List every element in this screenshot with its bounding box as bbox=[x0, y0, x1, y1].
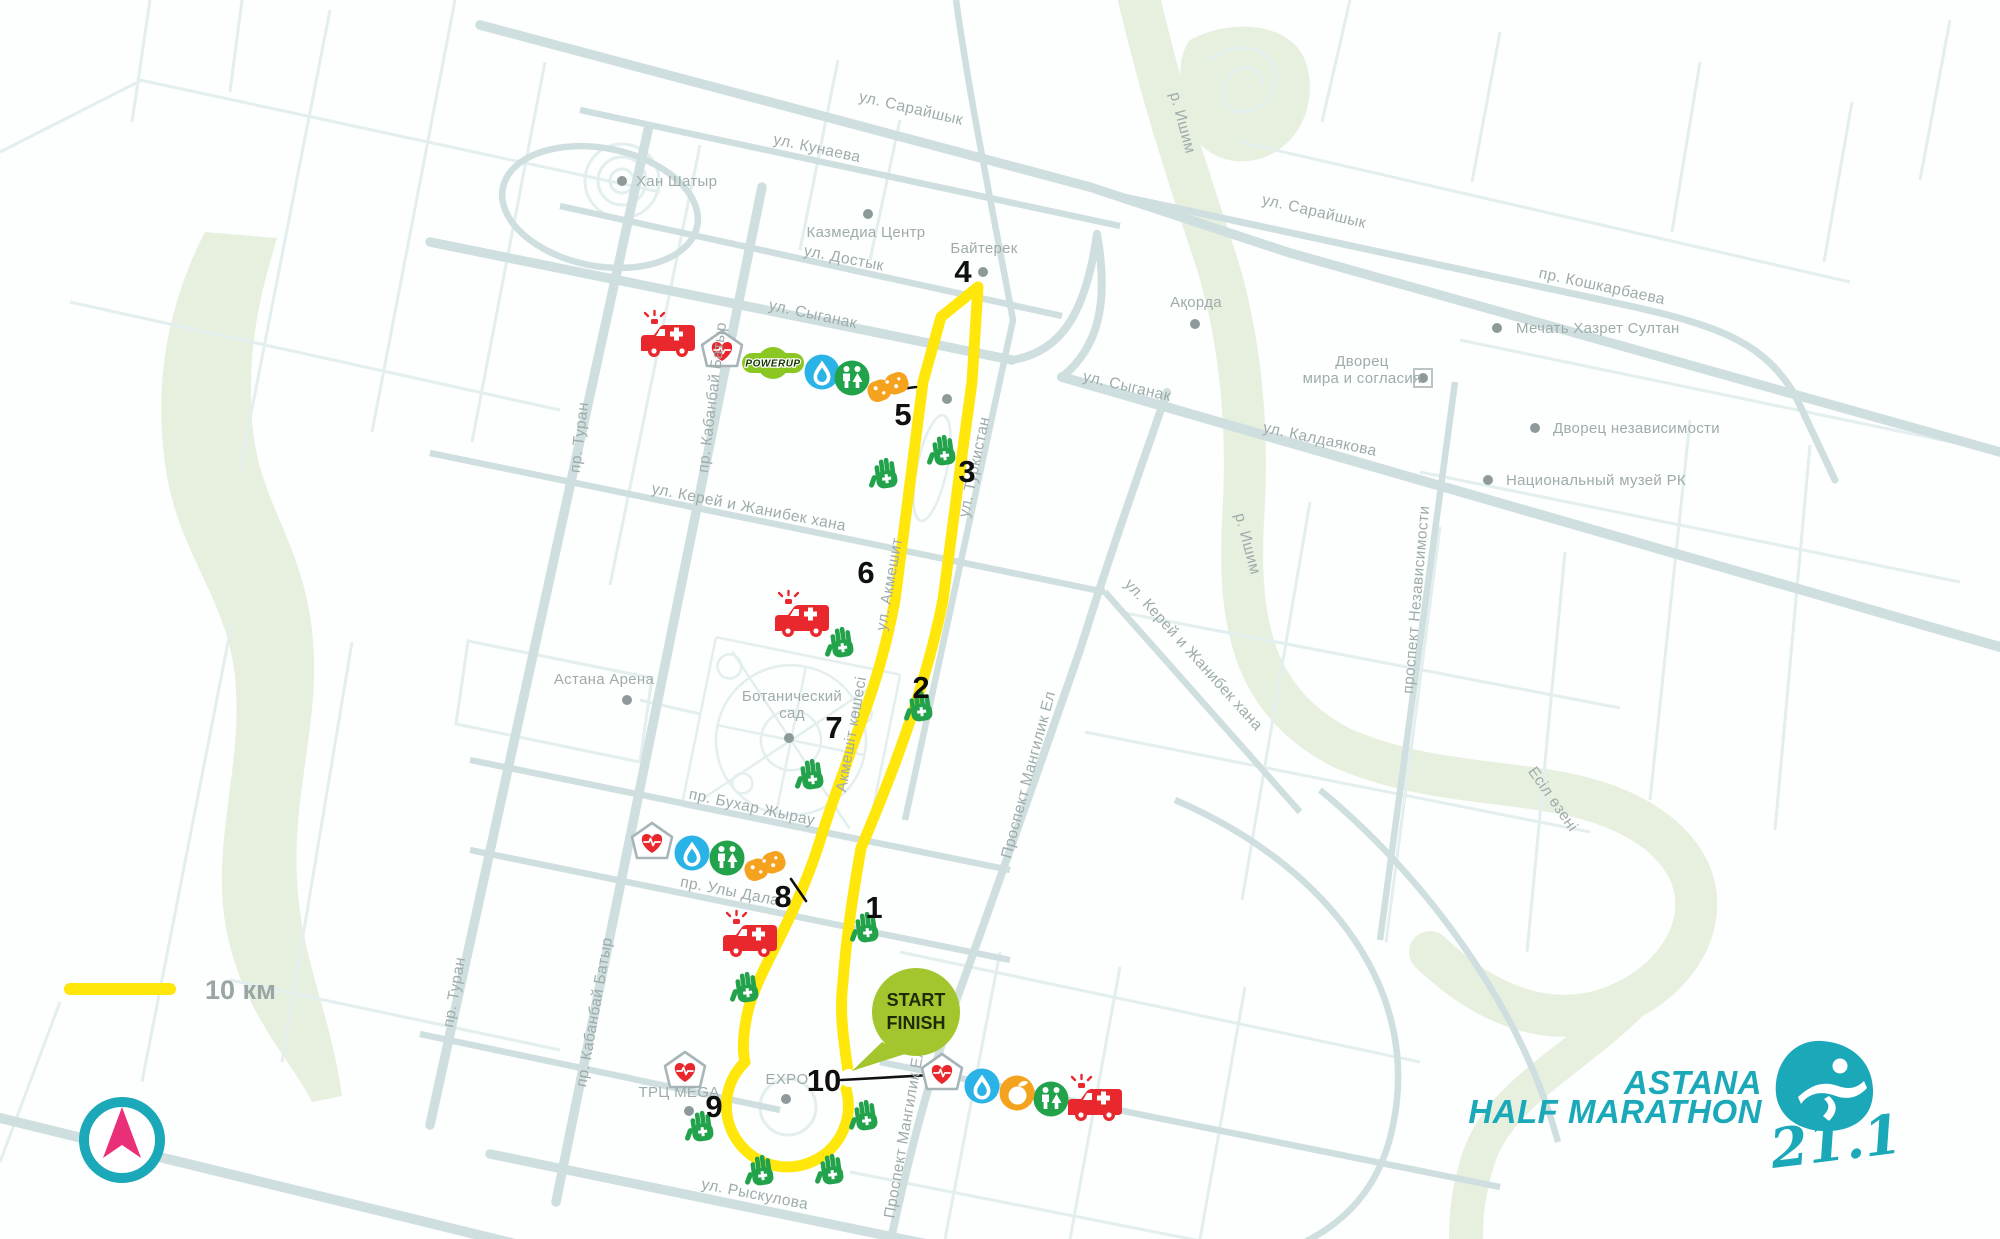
logo-title-line2: HALF MARATHON bbox=[1468, 1093, 1762, 1130]
toilets-icon bbox=[1034, 1082, 1069, 1117]
km-marker-8: 8 bbox=[774, 879, 791, 914]
poi-dot bbox=[942, 394, 952, 404]
km-marker-2: 2 bbox=[912, 670, 929, 705]
km-marker-6: 6 bbox=[857, 555, 874, 590]
poi-dot bbox=[1530, 423, 1540, 433]
km-marker-4: 4 bbox=[954, 254, 972, 289]
poi-label: EXPO bbox=[766, 1071, 809, 1088]
poi-dot bbox=[622, 695, 632, 705]
water-icon bbox=[805, 355, 840, 390]
map-canvas: POWERUP Хан ШатырКазмедиа ЦентрБайтерекА… bbox=[0, 0, 2000, 1239]
water-icon bbox=[675, 836, 710, 871]
poi-dot bbox=[684, 1106, 694, 1116]
start-label: START bbox=[887, 990, 946, 1010]
compass bbox=[84, 1102, 160, 1178]
poi-label: Ақорда bbox=[1170, 294, 1222, 311]
poi-dot bbox=[781, 1094, 791, 1104]
poi-dot bbox=[1492, 323, 1502, 333]
poi-dot bbox=[784, 733, 794, 743]
toilets-icon bbox=[835, 361, 870, 396]
km-marker-5: 5 bbox=[894, 397, 911, 432]
water-icon bbox=[965, 1069, 1000, 1104]
km-marker-1: 1 bbox=[865, 890, 882, 925]
km-marker-7: 7 bbox=[825, 710, 842, 745]
fruit-icon bbox=[1000, 1076, 1035, 1111]
marathon-course-map: POWERUP Хан ШатырКазмедиа ЦентрБайтерекА… bbox=[0, 0, 2000, 1239]
finish-label: FINISH bbox=[886, 1013, 945, 1033]
poi-label: Национальный музей РК bbox=[1506, 472, 1686, 489]
poi-label: Казмедиа Центр bbox=[807, 224, 926, 241]
poi-label: Астана Арена bbox=[554, 671, 655, 688]
poi-label: Мечать Хазрет Султан bbox=[1516, 320, 1680, 337]
km-marker-10: 10 bbox=[807, 1063, 841, 1098]
powerup-label: POWERUP bbox=[745, 359, 800, 370]
toilets-icon bbox=[710, 841, 745, 876]
poi-label: Хан Шатыр bbox=[636, 173, 717, 190]
poi-dot bbox=[1190, 319, 1200, 329]
poi-dot bbox=[863, 209, 873, 219]
poi-label: Дворец независимости bbox=[1553, 420, 1720, 437]
poi-dot bbox=[1483, 475, 1493, 485]
poi-dot bbox=[617, 176, 627, 186]
legend-distance-label: 10 км bbox=[205, 975, 276, 1005]
km-marker-9: 9 bbox=[705, 1089, 722, 1124]
km-marker-3: 3 bbox=[958, 454, 975, 489]
poi-dot bbox=[978, 267, 988, 277]
